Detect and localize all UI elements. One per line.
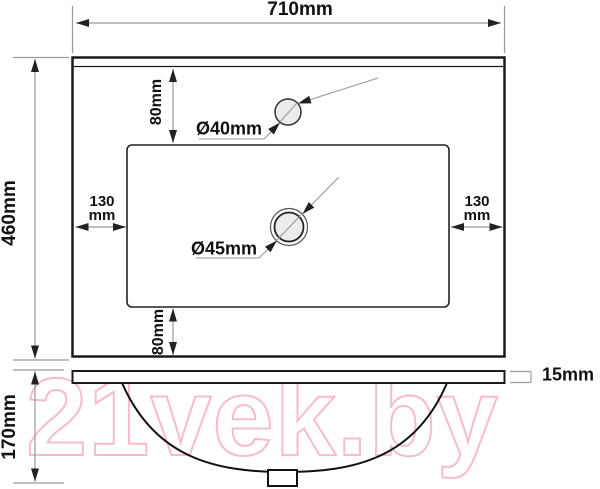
washbasin-technical-drawing: 21vek.by: [0, 0, 600, 489]
dim-depth: [13, 58, 69, 361]
offset-left-unit: mm: [89, 209, 116, 223]
offset-top-label: 80mm: [148, 79, 166, 125]
side-drain-stub: [268, 470, 297, 486]
side-view: [73, 371, 505, 486]
faucet-hole: [275, 99, 301, 125]
side-rim-profile: [73, 371, 505, 383]
dim-thickness-bracket: [510, 372, 531, 383]
drawing-canvas: [0, 0, 600, 489]
offset-left-label: 130 mm: [89, 195, 116, 223]
dim-depth-label: 460mm: [0, 180, 21, 246]
side-basin-curve: [122, 383, 447, 472]
top-view: [73, 58, 505, 357]
offset-right-label: 130 mm: [464, 195, 491, 223]
faucet-hole-label: Ø40mm: [196, 119, 262, 140]
drain-hole-label: Ø45mm: [191, 239, 257, 260]
offset-bottom-label: 80mm: [150, 309, 168, 355]
thickness-label: 15mm: [542, 365, 594, 386]
dim-width-label: 710mm: [267, 0, 333, 21]
offset-right-unit: mm: [464, 209, 491, 223]
dim-height-label: 170mm: [0, 394, 21, 460]
